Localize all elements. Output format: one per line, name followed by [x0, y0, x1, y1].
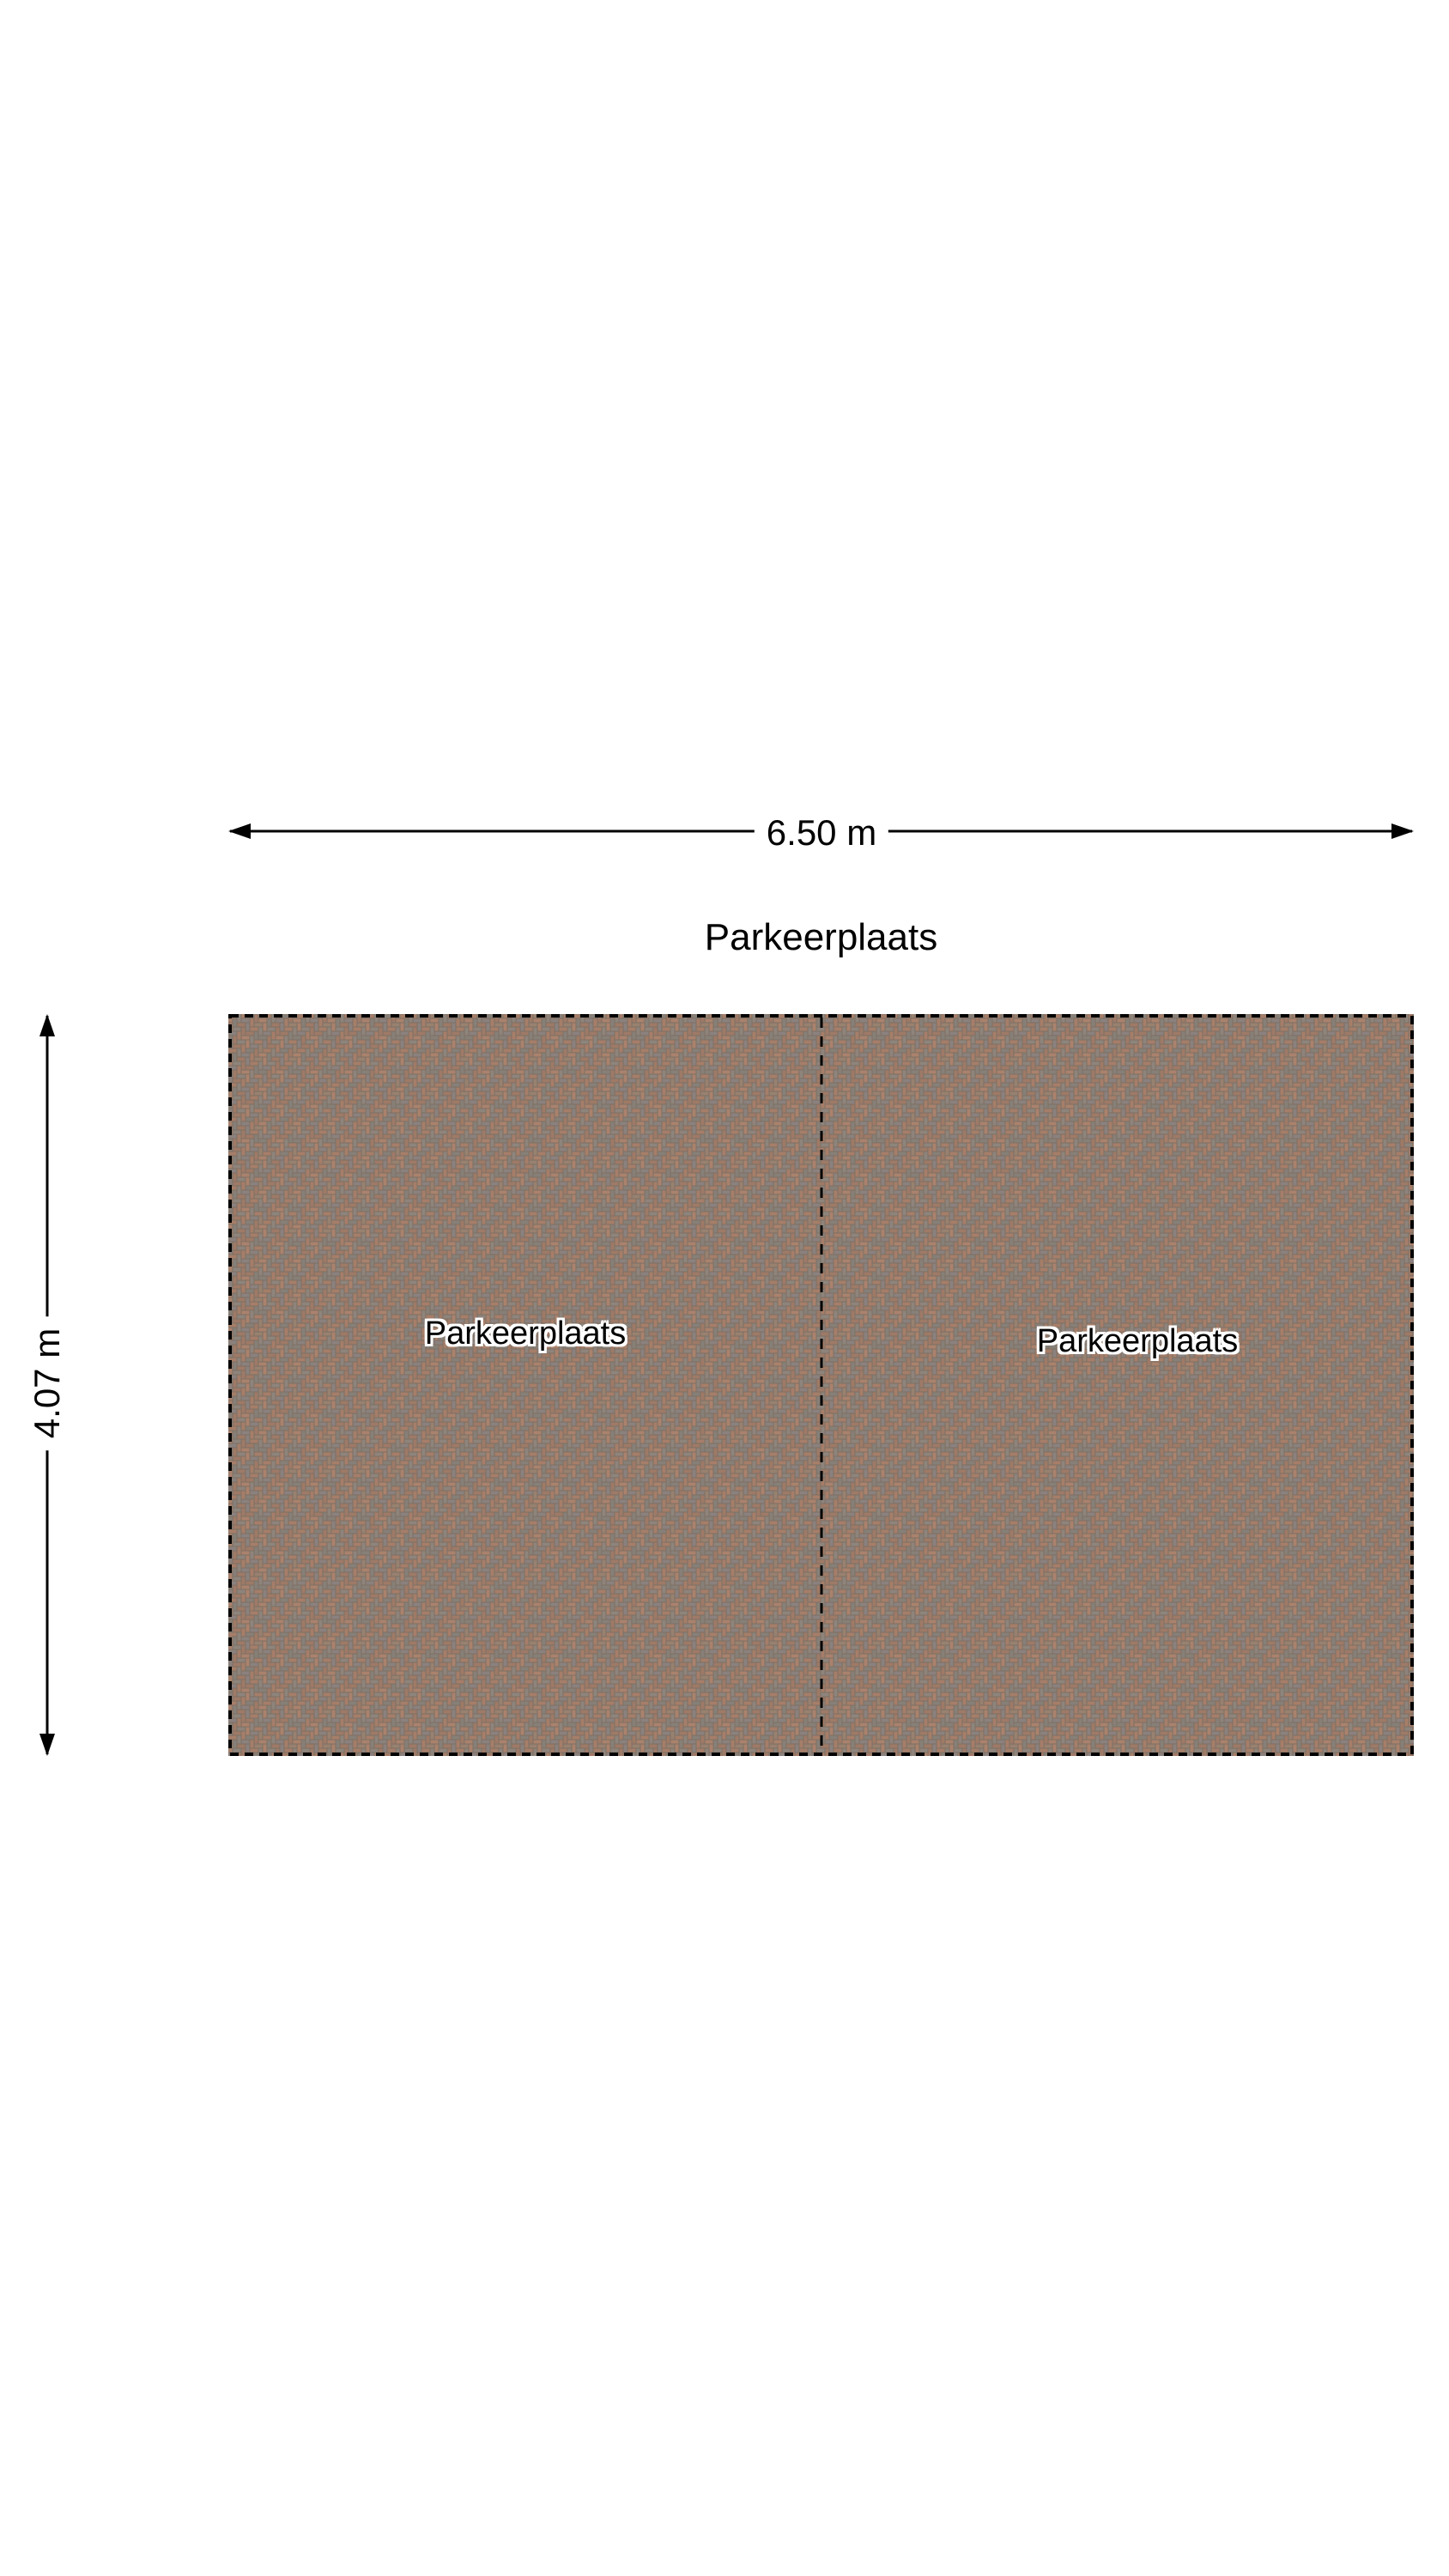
floor-plan: 6.50 m Parkeerplaats	[0, 0, 1449, 2576]
arrow-down-icon	[39, 1734, 55, 1756]
space-label-left: Parkeerplaats	[425, 1315, 626, 1352]
paver-texture	[228, 1014, 1414, 1756]
plot-area: Parkeerplaats Parkeerplaats	[228, 1014, 1414, 1756]
arrow-up-icon	[39, 1014, 55, 1036]
arrow-left-icon	[228, 823, 251, 839]
plan-title: Parkeerplaats	[228, 917, 1414, 958]
space-label-right: Parkeerplaats	[1037, 1323, 1238, 1359]
arrow-right-icon	[1391, 823, 1414, 839]
width-dimension-label: 6.50 m	[755, 812, 888, 854]
height-dimension-label: 4.07 m	[27, 1316, 68, 1450]
